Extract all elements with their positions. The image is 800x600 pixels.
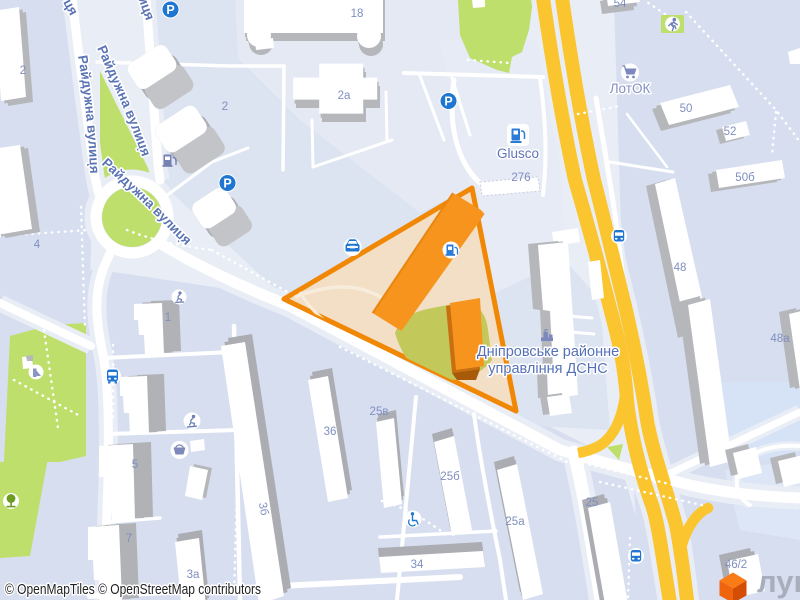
svg-text:54: 54 (614, 0, 627, 10)
svg-text:2: 2 (20, 65, 26, 77)
svg-text:50б: 50б (735, 172, 755, 184)
svg-text:1: 1 (165, 312, 171, 324)
svg-text:Дніпровське районне: Дніпровське районне (477, 344, 619, 360)
svg-text:лун: лун (757, 564, 800, 599)
svg-text:7: 7 (126, 533, 132, 545)
svg-text:36: 36 (324, 426, 337, 438)
svg-text:2: 2 (222, 101, 228, 113)
svg-text:4: 4 (34, 239, 41, 251)
svg-text:P: P (444, 95, 452, 109)
svg-text:50: 50 (680, 103, 693, 115)
svg-text:Glusco: Glusco (497, 146, 539, 161)
svg-text:18: 18 (351, 8, 364, 20)
svg-text:25а: 25а (505, 516, 525, 528)
svg-text:2а: 2а (338, 90, 351, 102)
svg-text:25в: 25в (370, 406, 389, 418)
svg-text:48а: 48а (770, 333, 790, 345)
svg-text:48: 48 (674, 262, 687, 274)
svg-text:25б: 25б (440, 471, 460, 483)
svg-text:© OpenMapTiles © OpenStreetMap: © OpenMapTiles © OpenStreetMap contribut… (5, 581, 261, 598)
svg-text:P: P (166, 3, 174, 17)
svg-text:276: 276 (511, 172, 530, 184)
svg-text:P: P (223, 177, 231, 191)
svg-text:34: 34 (411, 559, 424, 571)
svg-text:46/2: 46/2 (725, 559, 747, 571)
svg-text:управління ДСНС: управління ДСНС (488, 361, 607, 377)
svg-text:ЛотОК: ЛотОК (610, 81, 651, 96)
svg-text:3а: 3а (187, 569, 200, 581)
svg-text:5: 5 (132, 459, 138, 471)
svg-text:25: 25 (586, 497, 599, 509)
svg-text:52: 52 (724, 126, 737, 138)
